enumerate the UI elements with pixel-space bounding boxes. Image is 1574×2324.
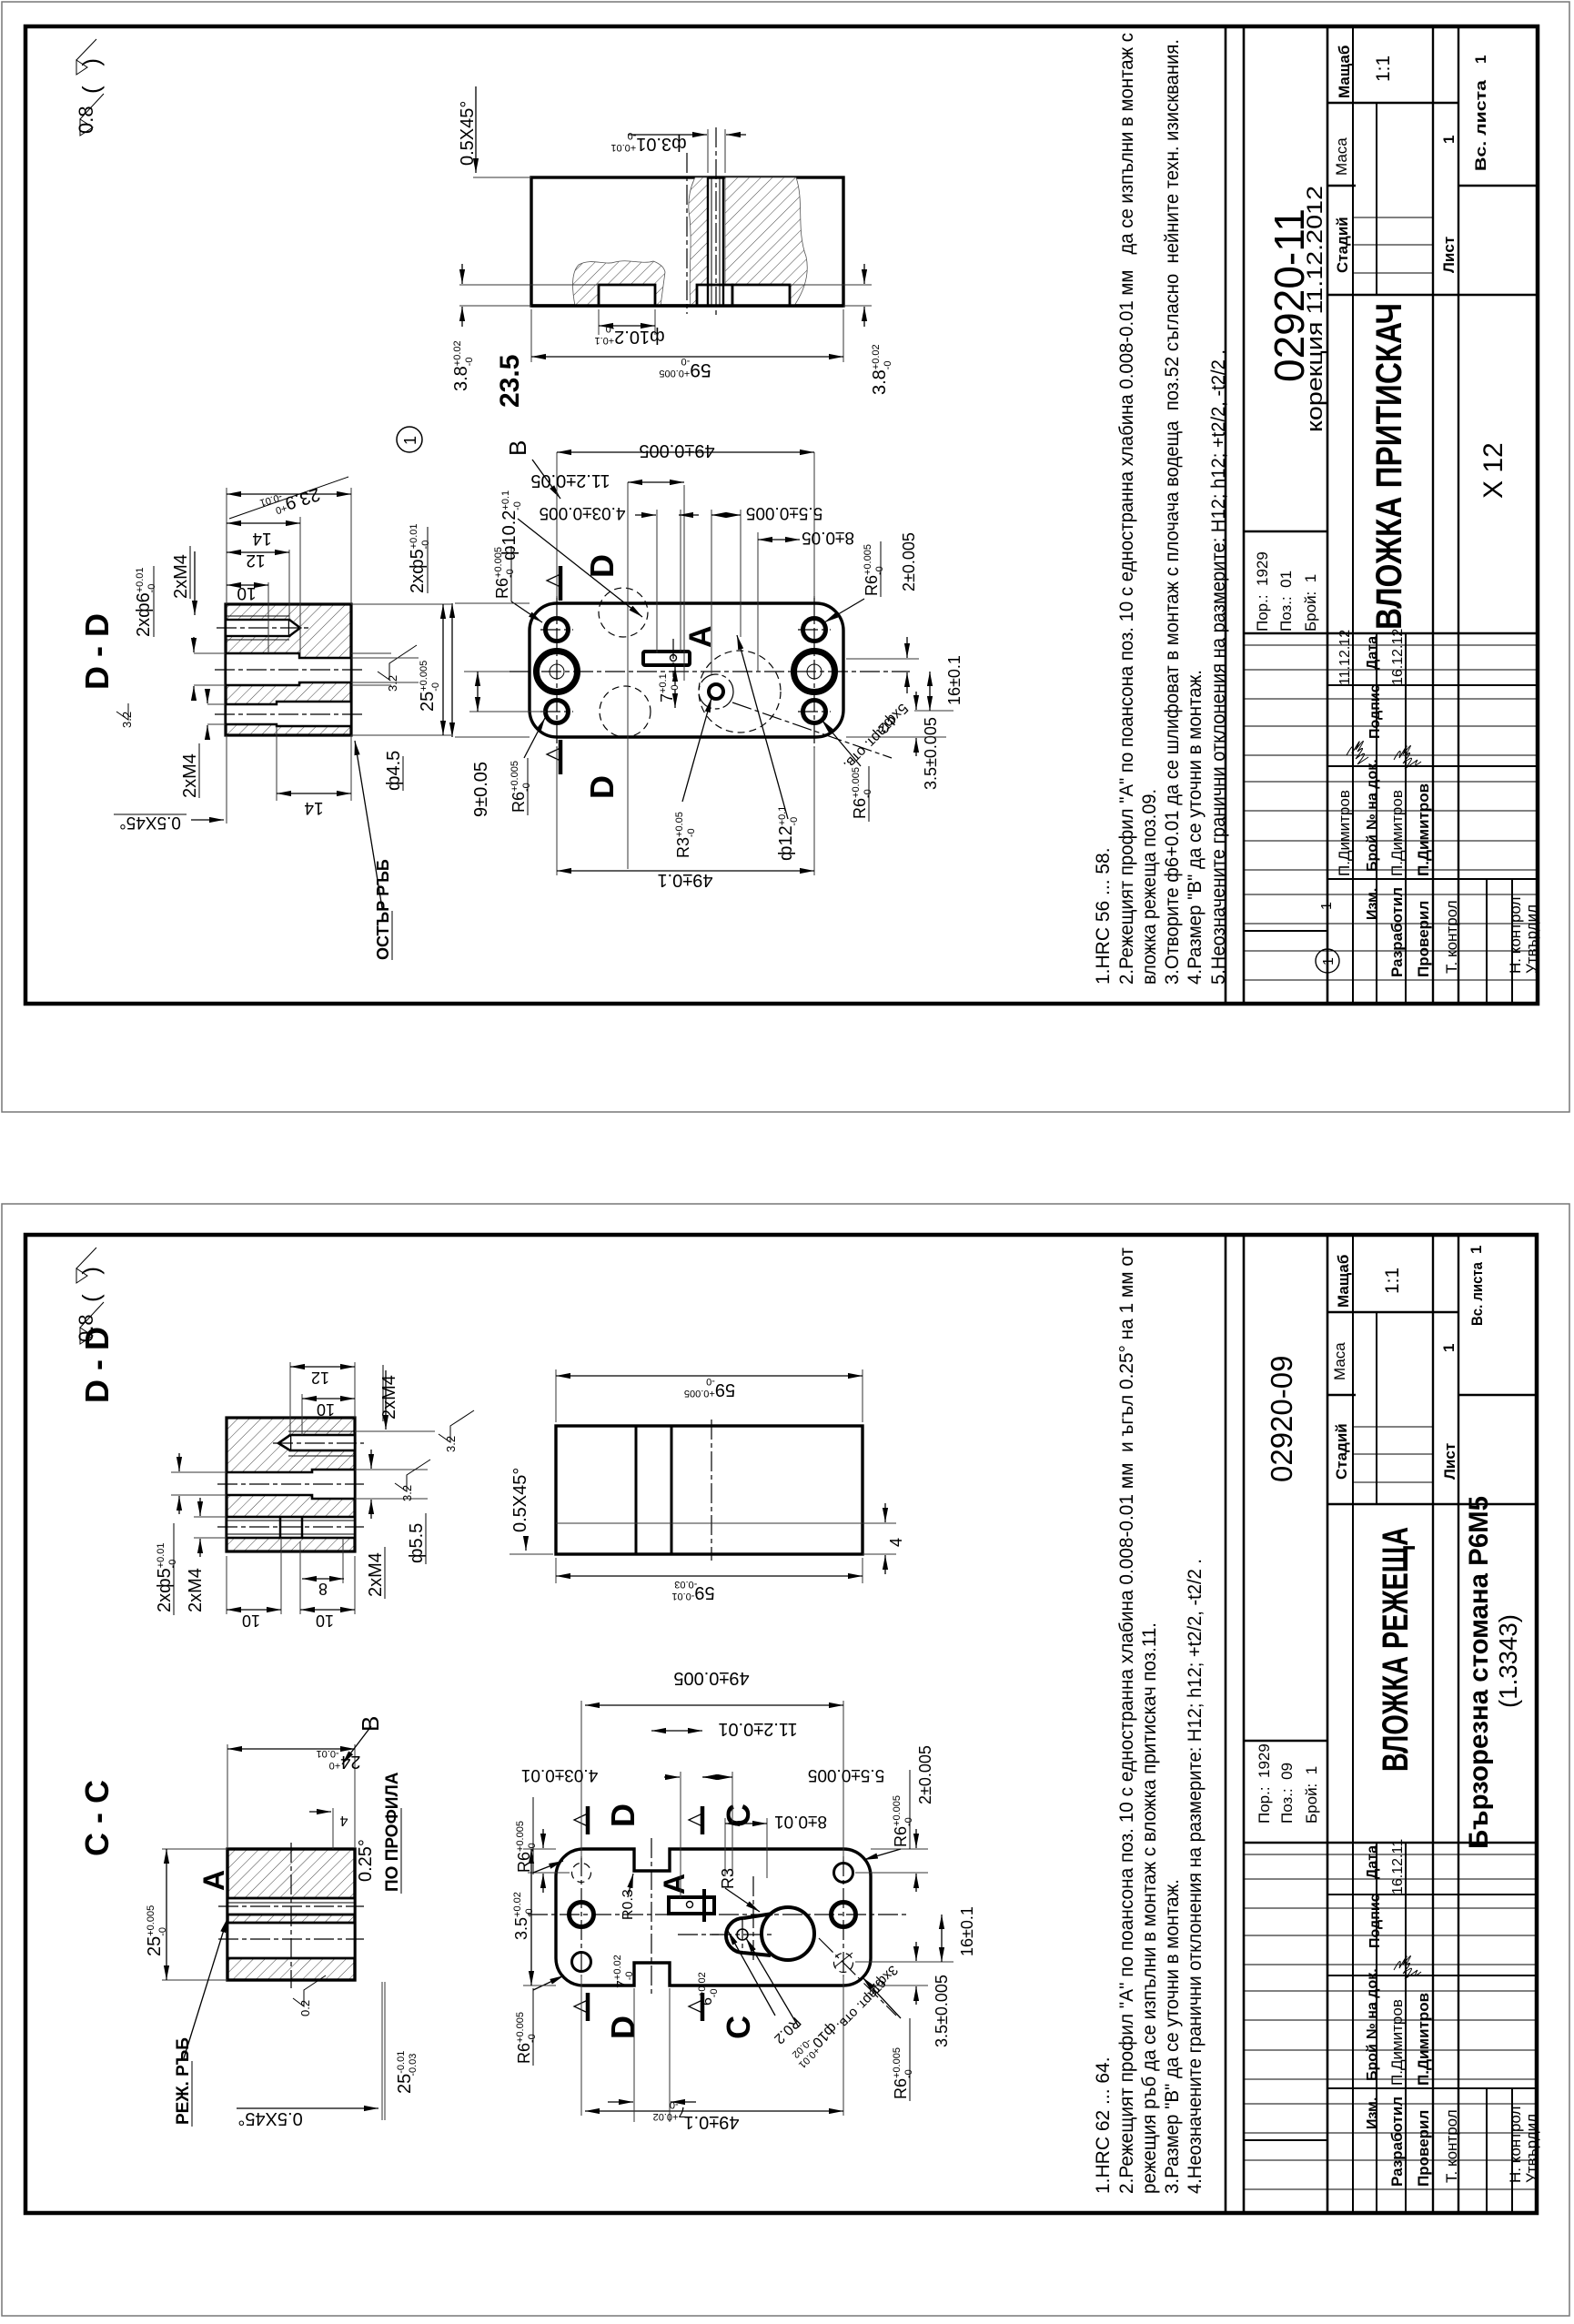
svg-text:16.12.12: 16.12.12 (1390, 629, 1406, 685)
svg-text:5.5±0.005: 5.5±0.005 (808, 1765, 884, 1784)
svg-text:A: A (683, 625, 718, 648)
svg-text:3.2: 3.2 (120, 712, 134, 728)
svg-text:П.Димитров: П.Димитров (1388, 1999, 1406, 2086)
svg-text:Т. контрол: Т. контрол (1443, 2109, 1460, 2183)
svg-text:D: D (583, 775, 621, 799)
svg-text:2xM4: 2xM4 (186, 1568, 206, 1612)
svg-text:9±0.05: 9±0.05 (471, 762, 491, 817)
svg-text:10: 10 (316, 1612, 334, 1630)
svg-text:11.12.12: 11.12.12 (1337, 630, 1353, 685)
svg-text:Мащаб: Мащаб (1335, 1255, 1352, 1308)
svg-text:Лист: Лист (1440, 237, 1458, 273)
svg-text:Утвърдил: Утвърдил (1523, 2114, 1540, 2183)
svg-text:Брой: Брой (1365, 2044, 1380, 2081)
svg-text:B: B (504, 440, 531, 456)
svg-text:1.HRC 62 ... 64.: 1.HRC 62 ... 64. (1093, 2056, 1114, 2194)
svg-text:14: 14 (252, 529, 272, 548)
svg-text:16±0.1: 16±0.1 (945, 655, 964, 705)
svg-text:Пор.: 1929: Пор.: 1929 (1256, 1743, 1273, 1824)
svg-text:Брой: Брой (1365, 834, 1380, 872)
svg-text:(1.3343): (1.3343) (1494, 1614, 1522, 1708)
svg-text:4: 4 (339, 1813, 348, 1828)
svg-text:№ на док.: № на док. (1365, 759, 1380, 830)
svg-text:Маса: Маса (1331, 1342, 1348, 1380)
svg-text:Вс. листа: Вс. листа (1468, 1262, 1486, 1326)
svg-text:0.25°: 0.25° (356, 1839, 376, 1882)
svg-text:R3: R3 (719, 1868, 737, 1889)
svg-text:C: C (720, 2016, 757, 2039)
svg-text:Маса: Маса (1333, 137, 1350, 176)
svg-text:Разработил: Разработил (1388, 887, 1406, 977)
svg-text:Вс. листа: Вс. листа (1472, 79, 1489, 171)
svg-text:корекция 11.12.2012: корекция 11.12.2012 (1303, 186, 1327, 432)
svg-text:10: 10 (242, 1612, 260, 1630)
svg-text:ф4.5: ф4.5 (384, 751, 404, 791)
svg-text:11.2±0.05: 11.2±0.05 (530, 470, 610, 490)
svg-text:12: 12 (246, 551, 265, 570)
svg-text:2xM4: 2xM4 (180, 753, 200, 798)
svg-text:3.2: 3.2 (444, 1436, 458, 1452)
svg-text:Н. контрол: Н. контрол (1507, 2107, 1524, 2183)
svg-text:49±0.005: 49±0.005 (639, 440, 714, 460)
svg-text:вложка режеща поз.09.: вложка режеща поз.09. (1139, 789, 1160, 985)
svg-text:1: 1 (1319, 902, 1335, 910)
svg-text:Бързорезна стомана Р6М5: Бързорезна стомана Р6М5 (1464, 1496, 1494, 1849)
svg-text:Брой: 1: Брой: 1 (1303, 1766, 1320, 1824)
svg-text:2±0.005: 2±0.005 (916, 1745, 934, 1804)
svg-text:режещия ръб да се изпълни в мо: режещия ръб да се изпълни в монтаж с вло… (1139, 1622, 1160, 2194)
svg-text:Поз.: 09: Поз.: 09 (1278, 1763, 1296, 1824)
svg-text:1: 1 (401, 436, 419, 445)
svg-text:3.5±0.005: 3.5±0.005 (933, 1975, 951, 2047)
svg-text:П.Димитров: П.Димитров (1415, 1993, 1432, 2086)
svg-text:2xM4: 2xM4 (366, 1552, 386, 1597)
svg-text:5.5±0.005: 5.5±0.005 (746, 503, 822, 522)
svg-text:4.03±0.005: 4.03±0.005 (540, 503, 626, 522)
svg-text:4.Неозначените гранични отклон: 4.Неозначените гранични отклонения на ра… (1185, 1559, 1206, 2194)
svg-text:49±0.1: 49±0.1 (657, 870, 712, 890)
svg-text:8: 8 (318, 1580, 328, 1598)
svg-text:0.8: 0.8 (75, 106, 97, 134)
svg-text:23.5: 23.5 (495, 355, 525, 408)
svg-text:Пор.: 1929: Пор.: 1929 (1254, 551, 1271, 632)
svg-text:0.2: 0.2 (298, 2000, 312, 2016)
svg-text:D: D (604, 2016, 641, 2039)
svg-text:Подпис: Подпис (1367, 684, 1383, 739)
svg-text:0.5X45°: 0.5X45° (510, 1468, 530, 1532)
svg-text:C - C: C - C (78, 1780, 116, 1856)
svg-text:Проверил: Проверил (1415, 2110, 1432, 2187)
svg-text:Проверил: Проверил (1415, 901, 1432, 977)
svg-text:0.5X45°: 0.5X45° (458, 101, 478, 166)
svg-text:2xM4: 2xM4 (379, 1375, 399, 1420)
svg-text:A: A (658, 1874, 691, 1895)
svg-text:X 12: X 12 (1478, 442, 1508, 499)
svg-text:3.2: 3.2 (400, 1485, 414, 1501)
svg-text:14: 14 (304, 798, 324, 817)
svg-text:Разработил: Разработил (1388, 2097, 1406, 2187)
svg-text:4.03±0.01: 4.03±0.01 (521, 1765, 598, 1784)
svg-text:1: 1 (1440, 1344, 1458, 1352)
svg-text:Изм.: Изм. (1365, 2097, 1380, 2129)
svg-text:Брой: 1: Брой: 1 (1302, 574, 1319, 632)
svg-text:16±0.1: 16±0.1 (958, 1906, 976, 1956)
svg-text:1:1: 1:1 (1382, 1268, 1403, 1294)
svg-text:4: 4 (887, 1538, 905, 1547)
svg-text:РЕЖ. РЪБ: РЕЖ. РЪБ (174, 2037, 193, 2125)
svg-text:5.Неозначените гранични отклон: 5.Неозначените гранични отклонения на ра… (1208, 349, 1229, 985)
svg-text:3.5±0.005: 3.5±0.005 (922, 717, 940, 790)
svg-text:Т. контрол: Т. контрол (1443, 900, 1460, 974)
svg-text:1: 1 (1440, 136, 1458, 144)
svg-text:0.5X45°: 0.5X45° (237, 2108, 302, 2128)
svg-text:Подпис: Подпис (1367, 1894, 1383, 1948)
svg-text:Стадий: Стадий (1334, 217, 1351, 273)
svg-text:Изм.: Изм. (1365, 888, 1380, 920)
svg-text:02920-09: 02920-09 (1265, 1356, 1298, 1482)
svg-text:2xM4: 2xM4 (171, 554, 191, 599)
svg-text:B: B (357, 1716, 384, 1732)
svg-text:1: 1 (1472, 56, 1489, 64)
svg-text:D - D: D - D (78, 613, 116, 690)
svg-text:ф5.5: ф5.5 (407, 1523, 427, 1563)
svg-text:П.Димитров: П.Димитров (1415, 783, 1432, 876)
svg-text:2.Режещият профил "А" по поанс: 2.Режещият профил "А" по поансона поз. 1… (1116, 33, 1137, 985)
svg-text:10: 10 (317, 1400, 335, 1419)
svg-text:П.Димитров: П.Димитров (1336, 790, 1353, 876)
svg-text:1: 1 (1321, 957, 1337, 965)
svg-text:3.Отворите ф6+0.01 да се шлифо: 3.Отворите ф6+0.01 да се шлифоват в монт… (1162, 39, 1183, 985)
svg-text:49±0.1: 49±0.1 (683, 2112, 739, 2132)
svg-text:1:1: 1:1 (1373, 56, 1394, 82)
svg-text:3.2: 3.2 (386, 675, 399, 692)
svg-text:49±0.005: 49±0.005 (673, 1668, 749, 1688)
svg-text:4.Размер "В" да се уточни в мо: 4.Размер "В" да се уточни в монтаж. (1185, 670, 1206, 985)
svg-text:Лист: Лист (1441, 1443, 1458, 1480)
svg-text:Н. контрол: Н. контрол (1507, 897, 1524, 974)
svg-text:1.HRC 56 ... 58.: 1.HRC 56 ... 58. (1093, 847, 1114, 985)
svg-text:Дата: Дата (1365, 636, 1380, 670)
svg-text:Поз.: 01: Поз.: 01 (1277, 571, 1295, 632)
svg-text:3.Размер "В" да се уточни в мо: 3.Размер "В" да се уточни в монтаж. (1162, 1879, 1183, 2194)
svg-text:ВЛОЖКА РЕЖЕЩА: ВЛОЖКА РЕЖЕЩА (1376, 1527, 1416, 1772)
svg-text:10: 10 (237, 583, 256, 602)
svg-text:№ на док.: № на док. (1365, 1968, 1380, 2039)
svg-text:D: D (604, 1804, 641, 1827)
svg-text:A: A (197, 1870, 230, 1891)
svg-text:Стадий: Стадий (1333, 1423, 1350, 1480)
svg-text:Дата: Дата (1365, 1845, 1380, 1879)
svg-text:2.Режещият профил "А" по поанс: 2.Режещият профил "А" по поансона поз. 1… (1116, 1248, 1137, 2194)
svg-text:12: 12 (311, 1369, 329, 1387)
svg-text:Утвърдил: Утвърдил (1523, 904, 1540, 974)
svg-text:1: 1 (1468, 1246, 1485, 1254)
svg-text:2±0.005: 2±0.005 (900, 532, 918, 591)
svg-text:ПО ПРОФИЛА: ПО ПРОФИЛА (383, 1772, 402, 1892)
svg-text:11.2±0.01: 11.2±0.01 (718, 1719, 797, 1739)
svg-text:16.12.11: 16.12.11 (1390, 1839, 1406, 1895)
svg-text:0.5X45°: 0.5X45° (119, 813, 181, 832)
svg-text:П.Димитров: П.Димитров (1388, 790, 1406, 876)
svg-text:0.8: 0.8 (75, 1314, 97, 1342)
svg-text:Мащаб: Мащаб (1336, 45, 1353, 98)
svg-text:8±0.01: 8±0.01 (774, 1812, 827, 1831)
svg-text:8±0.05: 8±0.05 (802, 528, 854, 547)
svg-text:ВЛОЖКА ПРИТИСКАЧ: ВЛОЖКА ПРИТИСКАЧ (1369, 303, 1409, 630)
